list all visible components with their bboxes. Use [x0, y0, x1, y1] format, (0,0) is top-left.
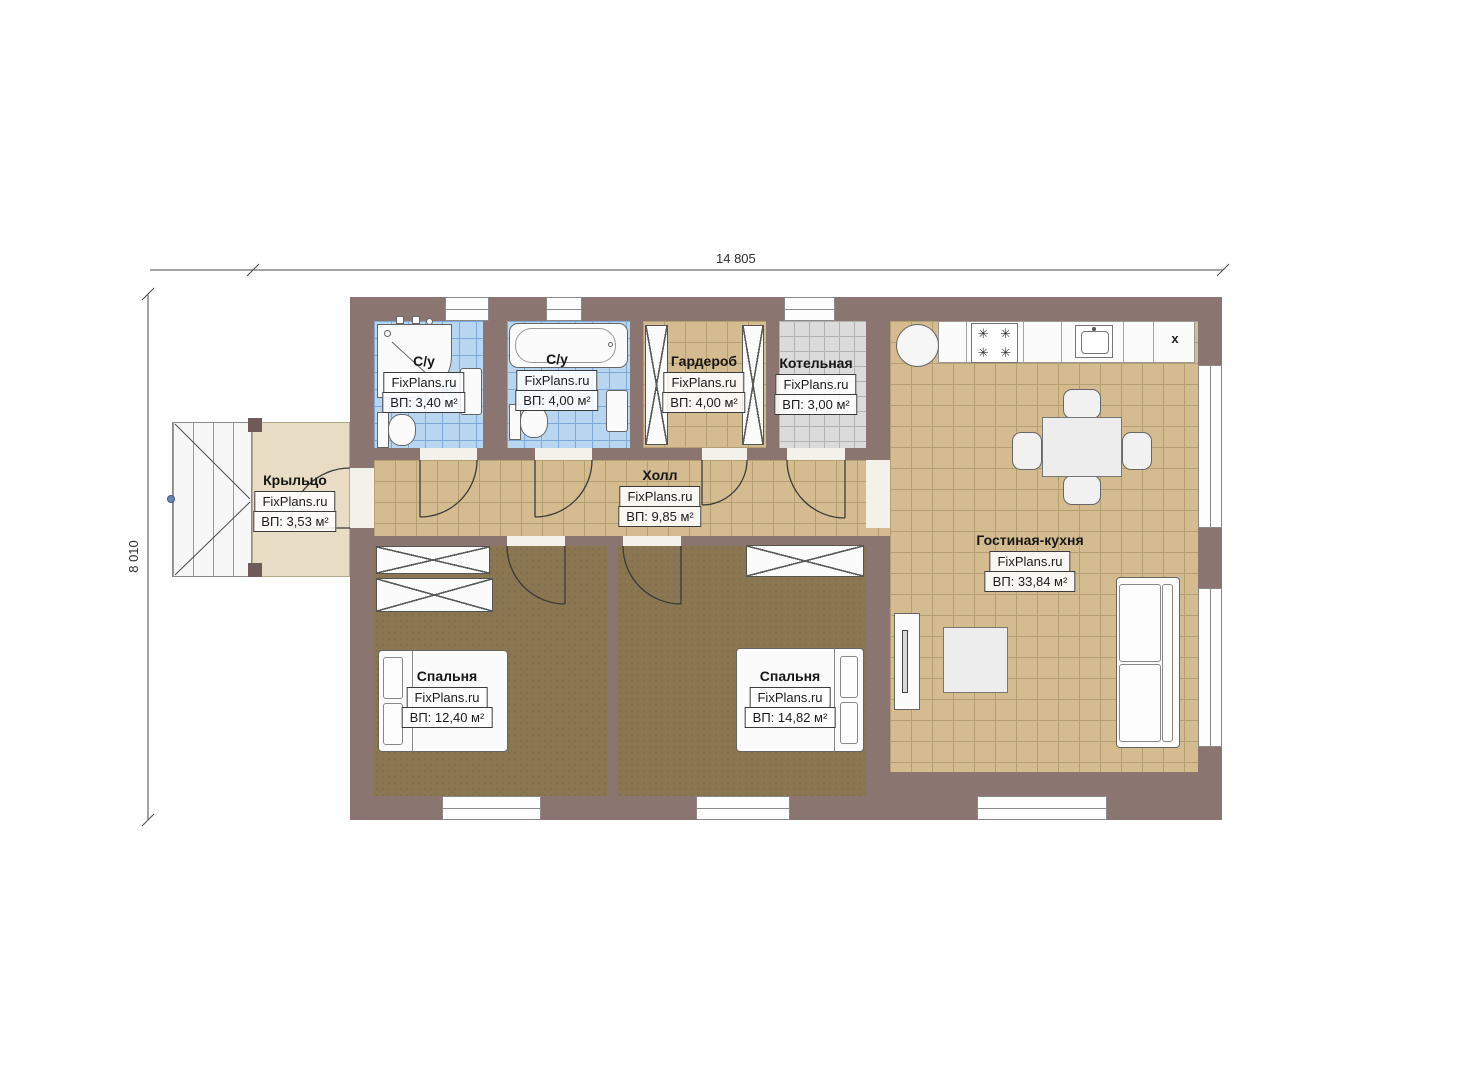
dining-chair — [1012, 432, 1042, 470]
bed-pillow — [840, 656, 858, 698]
bathtub-drain — [608, 342, 613, 347]
round-table-icon — [896, 324, 939, 367]
dining-chair — [1122, 432, 1152, 470]
window-bathroom1 — [445, 297, 489, 321]
watermark-label: FixPlans.ru — [383, 372, 464, 393]
wardrobe-door-opening — [702, 448, 747, 460]
bedroom-wardrobe — [746, 545, 864, 577]
bedroom-wardrobe — [376, 578, 493, 612]
shower-faucet-icon — [426, 318, 433, 325]
toilet-bowl — [388, 414, 416, 446]
room-area-label: ВП: 14,82 м² — [745, 707, 836, 728]
watermark-label: FixPlans.ru — [406, 687, 487, 708]
watermark-label: FixPlans.ru — [663, 372, 744, 393]
counter-seam — [1061, 322, 1062, 362]
sofa-cushion — [1119, 584, 1161, 662]
coffee-table — [943, 627, 1008, 693]
watermark-label: FixPlans.ru — [989, 551, 1070, 572]
bed-pillow — [840, 702, 858, 744]
watermark-label: FixPlans.ru — [775, 374, 856, 395]
tv-icon — [902, 630, 908, 693]
bedroom-wardrobe — [376, 546, 490, 574]
porch-post — [248, 563, 262, 577]
room-area-label: ВП: 4,00 м² — [662, 392, 745, 413]
room-label-hall: Холл FixPlans.ru ВП: 9,85 м² — [618, 467, 701, 527]
dimension-width-label: 14 805 — [716, 251, 756, 266]
room-area-label: ВП: 3,40 м² — [382, 392, 465, 413]
sink-tap — [1092, 327, 1096, 331]
window-living-east-lower — [1198, 588, 1222, 747]
window-boiler — [784, 297, 835, 321]
burner-icon: ✳ — [972, 343, 995, 362]
room-name: Спальня — [760, 668, 820, 684]
shower-faucet-icon — [412, 316, 420, 324]
dimension-tick — [142, 814, 154, 826]
room-area-label: ВП: 3,53 м² — [253, 511, 336, 532]
counter-seam — [1023, 322, 1024, 362]
room-name: Гостиная-кухня — [976, 532, 1083, 548]
watermark-label: FixPlans.ru — [619, 486, 700, 507]
bedroom2-door-opening — [623, 536, 681, 546]
room-label-bathroom1: С/у FixPlans.ru ВП: 3,40 м² — [382, 353, 465, 413]
room-label-wardrobe: Гардероб FixPlans.ru ВП: 4,00 м² — [662, 353, 745, 413]
bathroom-cabinet — [606, 390, 628, 432]
window-bedroom1 — [442, 796, 541, 820]
room-name: С/у — [546, 351, 568, 367]
room-name: Холл — [642, 467, 677, 483]
shower-drain — [384, 330, 391, 337]
watermark-label: FixPlans.ru — [749, 687, 830, 708]
counter-seam — [1123, 322, 1124, 362]
burner-icon: ✳ — [972, 324, 995, 343]
dimension-height-label: 8 010 — [126, 540, 141, 573]
window-living-east-upper — [1198, 365, 1222, 528]
room-label-bathroom2: С/у FixPlans.ru ВП: 4,00 м² — [515, 351, 598, 411]
boiler-door-opening — [787, 448, 845, 460]
watermark-label: FixPlans.ru — [254, 491, 335, 512]
room-name: Крыльцо — [263, 472, 327, 488]
window-bathroom2 — [546, 297, 582, 321]
room-label-porch: Крыльцо FixPlans.ru ВП: 3,53 м² — [253, 472, 336, 532]
bathroom2-door-opening — [535, 448, 592, 460]
room-name: С/у — [413, 353, 435, 369]
porch-post — [248, 418, 262, 432]
room-label-boiler: Котельная FixPlans.ru ВП: 3,00 м² — [774, 355, 857, 415]
bed-pillow — [383, 657, 403, 699]
room-area-label: ВП: 4,00 м² — [515, 390, 598, 411]
vent-mark: x — [1163, 331, 1187, 351]
room-name: Котельная — [779, 355, 852, 371]
counter-seam — [1153, 322, 1154, 362]
entrance-door-opening — [350, 468, 374, 528]
dimension-tick — [247, 264, 259, 276]
floor-plan-canvas: 14 805 8 010 — [0, 0, 1474, 1080]
stove-icon: ✳ ✳ ✳ ✳ — [971, 323, 1018, 363]
burner-icon: ✳ — [995, 324, 1018, 343]
room-label-living: Гостиная-кухня FixPlans.ru ВП: 33,84 м² — [976, 532, 1083, 592]
room-name: Гардероб — [671, 353, 737, 369]
watermark-label: FixPlans.ru — [516, 370, 597, 391]
dining-chair — [1063, 389, 1101, 419]
room-label-bedroom2: Спальня FixPlans.ru ВП: 14,82 м² — [745, 668, 836, 728]
window-bedroom2 — [696, 796, 790, 820]
sofa-cushion — [1119, 664, 1161, 742]
porch-stairs — [172, 422, 252, 577]
sink-basin — [1081, 331, 1109, 354]
window-living-south — [977, 796, 1107, 820]
bed-pillow — [383, 703, 403, 745]
dimension-tick — [1217, 264, 1229, 276]
dimension-tick — [142, 288, 154, 300]
dining-table — [1042, 417, 1122, 477]
living-passage-opening — [866, 460, 890, 528]
bathroom1-door-opening — [420, 448, 477, 460]
room-label-bedroom1: Спальня FixPlans.ru ВП: 12,40 м² — [402, 668, 493, 728]
counter-seam — [966, 322, 967, 362]
room-area-label: ВП: 33,84 м² — [985, 571, 1076, 592]
shower-faucet-icon — [396, 316, 404, 324]
room-area-label: ВП: 3,00 м² — [774, 394, 857, 415]
room-area-label: ВП: 12,40 м² — [402, 707, 493, 728]
room-name: Спальня — [417, 668, 477, 684]
sofa-back — [1162, 584, 1173, 742]
burner-icon: ✳ — [995, 343, 1018, 362]
kitchen-sink-icon — [1075, 325, 1113, 358]
dining-chair — [1063, 475, 1101, 505]
room-area-label: ВП: 9,85 м² — [618, 506, 701, 527]
bedroom1-door-opening — [507, 536, 565, 546]
